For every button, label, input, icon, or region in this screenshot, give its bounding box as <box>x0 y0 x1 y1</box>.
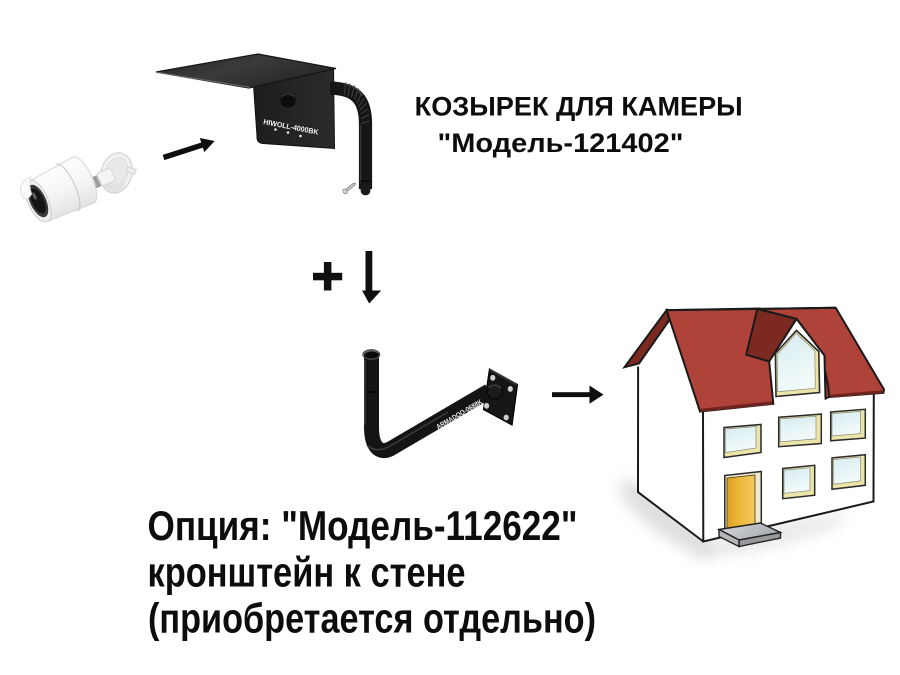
svg-text:(приобретается отдельно): (приобретается отдельно) <box>148 595 596 642</box>
svg-text:Опция: "Модель-112622": Опция: "Модель-112622" <box>148 502 578 549</box>
svg-text:КОЗЫРЕК ДЛЯ КАМЕРЫ: КОЗЫРЕК ДЛЯ КАМЕРЫ <box>415 91 743 121</box>
svg-text:кронштейн к стене: кронштейн к стене <box>148 548 466 595</box>
svg-text:"Модель-121402": "Модель-121402" <box>438 128 684 158</box>
